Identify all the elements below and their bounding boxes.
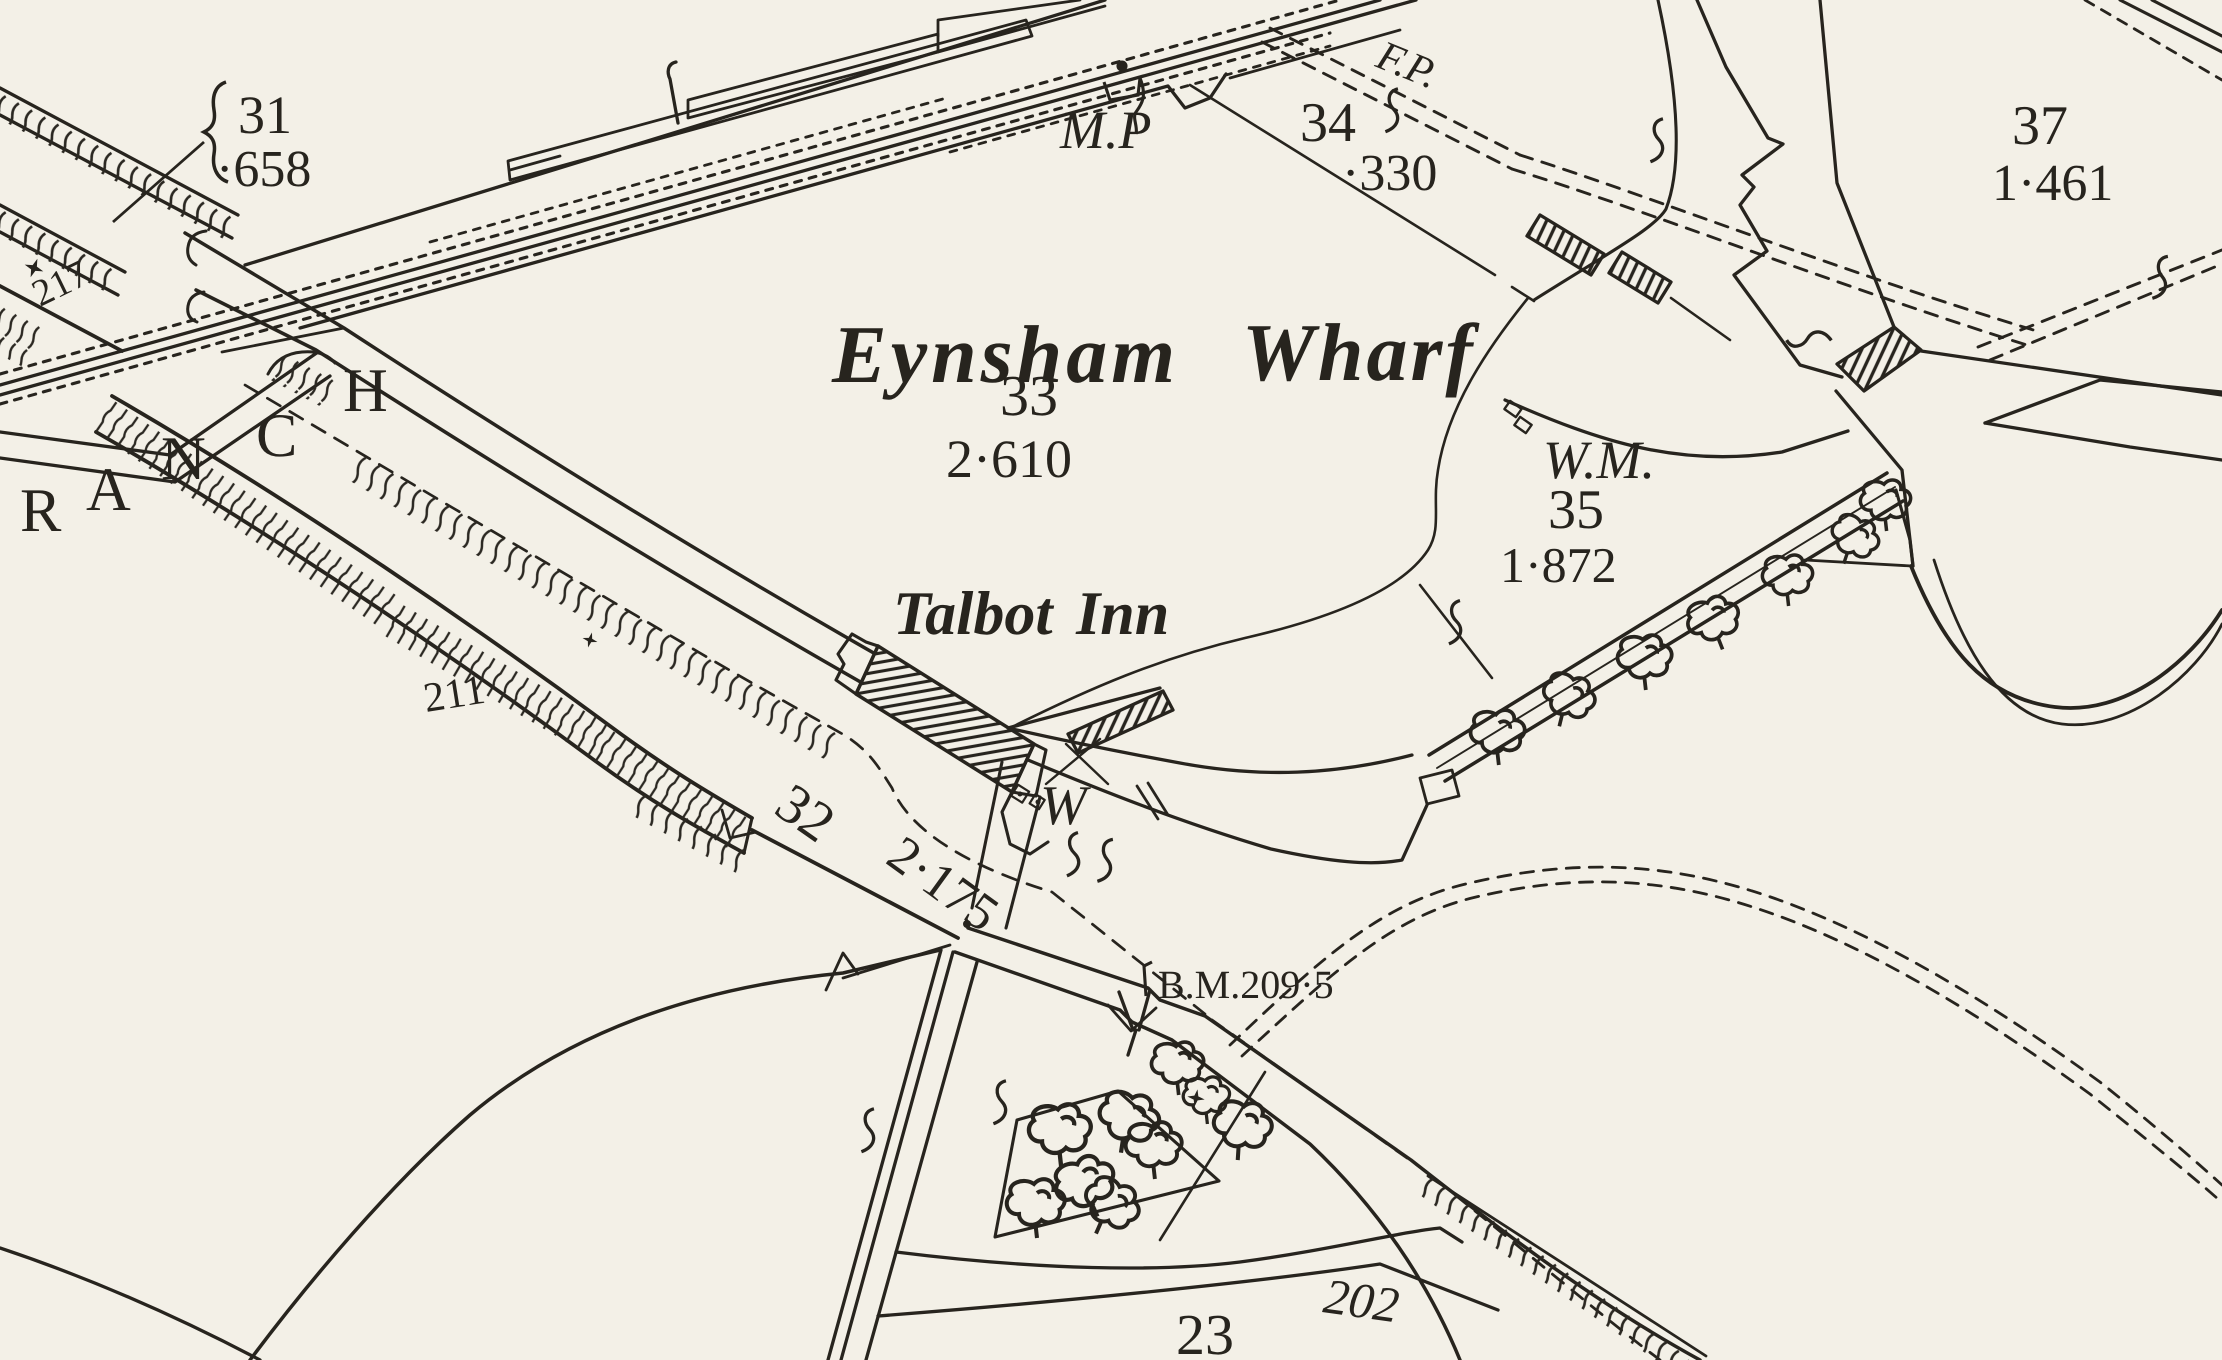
svg-text:W: W bbox=[1040, 775, 1091, 837]
svg-text:37: 37 bbox=[2012, 95, 2068, 157]
svg-text:Talbot Inn: Talbot Inn bbox=[893, 580, 1169, 648]
svg-text:R: R bbox=[20, 477, 62, 545]
svg-text:2·610: 2·610 bbox=[946, 429, 1072, 489]
svg-text:H: H bbox=[343, 357, 388, 425]
svg-text:A: A bbox=[86, 456, 131, 524]
svg-text:M.P: M.P bbox=[1059, 100, 1151, 160]
svg-text:B.M.209·5: B.M.209·5 bbox=[1158, 962, 1334, 1007]
svg-text:N: N bbox=[161, 425, 206, 493]
svg-text:35: 35 bbox=[1548, 479, 1604, 541]
svg-text:1·872: 1·872 bbox=[1500, 537, 1617, 593]
svg-text:211: 211 bbox=[420, 667, 488, 722]
svg-text:1·461: 1·461 bbox=[1992, 155, 2113, 212]
svg-text:31: 31 bbox=[238, 85, 292, 145]
svg-text:33: 33 bbox=[1000, 363, 1058, 428]
svg-text:·658: ·658 bbox=[216, 141, 311, 198]
svg-text:23: 23 bbox=[1176, 1302, 1234, 1360]
svg-text:·330: ·330 bbox=[1342, 145, 1437, 202]
svg-text:202: 202 bbox=[1320, 1267, 1402, 1333]
svg-text:C: C bbox=[256, 402, 297, 470]
svg-text:Wharf: Wharf bbox=[1242, 307, 1480, 398]
